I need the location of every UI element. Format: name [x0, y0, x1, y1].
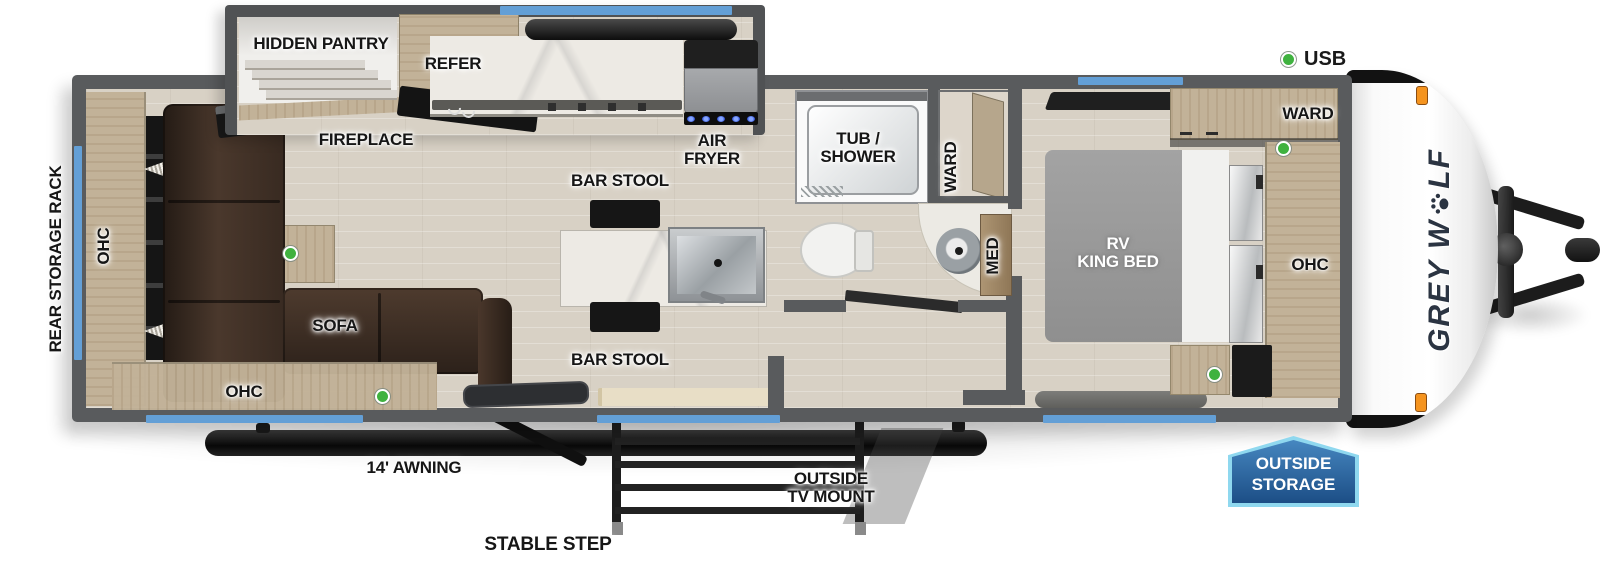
floorplan-diagram: GREY W LF	[0, 0, 1600, 569]
burner-icon	[717, 116, 725, 122]
king-bed-sheet	[1182, 150, 1229, 342]
kitchen-slide-window	[500, 6, 732, 15]
bath-ward-label: WARD	[942, 141, 960, 192]
range-hood	[525, 19, 737, 40]
entry-door-window	[597, 415, 780, 423]
bedroom-wall-foot	[963, 390, 1025, 405]
wardrobe-handle-2	[1206, 132, 1218, 135]
outside-storage-line1: OUTSIDE	[1256, 454, 1332, 474]
air-fryer-label-line1: AIR	[684, 132, 740, 150]
vanity-drain-icon	[955, 247, 963, 255]
awning-label: 14' AWNING	[367, 459, 462, 477]
rv-king-bed-label-line1: RV	[1077, 235, 1159, 253]
stable-step-label: STABLE STEP	[484, 535, 611, 555]
marker-light-top-icon	[1416, 86, 1428, 105]
tub-shower-label: TUB / SHOWER	[820, 130, 895, 166]
med-label: MED	[984, 237, 1002, 274]
shower-rod	[797, 92, 927, 101]
marker-light-bottom-icon	[1415, 393, 1427, 412]
sofa-main-seam	[378, 293, 381, 369]
stable-step-foot-left	[612, 522, 623, 535]
bar-stool-top-label: BAR STOOL	[571, 172, 669, 190]
sofa-chaise	[163, 104, 285, 402]
usb-indicator-bedroom-ohc	[1276, 141, 1291, 156]
usb-legend-label: USB	[1304, 48, 1346, 71]
bedroom-ward-label: WARD	[1282, 105, 1333, 123]
toilet-tank	[854, 230, 874, 272]
bedroom-window-top	[1078, 77, 1183, 85]
bath-wall-bottom	[784, 300, 846, 312]
mirror-hinge	[1256, 175, 1263, 189]
ohc-bottom-cabinet	[112, 362, 437, 410]
awning-roll	[205, 430, 987, 456]
counter-faucet-knobs	[548, 103, 668, 111]
front-cap-bottom-trim	[1346, 415, 1498, 428]
air-fryer-label-line2: FRYER	[684, 150, 740, 168]
door-side-window-left	[146, 415, 363, 423]
air-fryer-label: AIR FRYER	[684, 132, 740, 168]
bedroom-ohc-label: OHC	[1291, 256, 1328, 274]
usb-indicator-ohc-bottom	[375, 389, 390, 404]
island-sink	[668, 227, 765, 303]
stable-step-rung-4	[615, 507, 860, 514]
rear-window	[74, 146, 82, 360]
bar-stool-top	[590, 200, 660, 228]
stable-step-rung-1	[615, 438, 860, 445]
sofa-label: SOFA	[312, 317, 358, 335]
air-fryer-oven	[684, 40, 758, 114]
bar-stool-bottom	[590, 302, 660, 332]
pantry-shelf-step-1	[245, 60, 365, 70]
bedroom-window-bottom	[1043, 415, 1216, 423]
outside-tv-mount-label-line1: OUTSIDE	[787, 470, 874, 488]
hidden-pantry-label: HIDDEN PANTRY	[253, 35, 388, 53]
pantry-shelf-step-3	[259, 80, 391, 90]
pantry-shelf-step-2	[252, 70, 378, 80]
tub-shower-label-line1: TUB /	[820, 130, 895, 148]
sink-drain-icon	[714, 259, 722, 267]
mirror-hinge-2	[1256, 265, 1263, 279]
wolf-paw-icon	[1428, 192, 1452, 216]
rv-king-bed-label-line2: KING BED	[1077, 253, 1159, 271]
bedroom-foot-cabinet	[1232, 345, 1272, 397]
brand-logo: GREY W LF	[1382, 106, 1498, 394]
bath-wall-stub	[958, 300, 1010, 312]
tub-drain-texture	[801, 186, 843, 197]
bar-stool-bottom-label: BAR STOOL	[571, 351, 669, 369]
stable-step-rung-2	[615, 461, 860, 468]
wardrobe-handle	[1180, 132, 1192, 135]
pantry-shelf-step-4	[266, 90, 397, 100]
brand-text-suffix: LF	[1423, 148, 1457, 189]
burner-icon	[732, 116, 740, 122]
tv-entertainment-panel	[146, 116, 164, 360]
outside-storage-badge-inner: OUTSIDE STORAGE	[1232, 440, 1355, 503]
burner-icon	[687, 116, 695, 122]
usb-legend-dot	[1281, 52, 1296, 67]
sofa-chaise-seam-2	[168, 300, 280, 303]
outside-storage-line2: STORAGE	[1252, 475, 1336, 495]
refer-label: REFER	[425, 55, 482, 73]
outside-tv-mount-label: OUTSIDE TV MOUNT	[787, 470, 874, 506]
front-cap-top-trim	[1346, 70, 1498, 83]
burner-icon	[702, 116, 710, 122]
usb-indicator-living-table	[283, 246, 298, 261]
usb-indicator-nightstand	[1207, 367, 1222, 382]
runner-rug	[598, 388, 776, 406]
rear-storage-rack-label: REAR STORAGE RACK	[47, 165, 65, 352]
air-fryer-door	[684, 68, 758, 114]
burner-icon	[747, 116, 755, 122]
cooktop-burner-strip	[684, 112, 758, 125]
bedroom-tv-bar	[1045, 92, 1180, 110]
ohc-mirror-door-bottom	[1229, 245, 1263, 343]
bath-wall-left-lower	[768, 356, 784, 408]
rv-king-bed-label: RV KING BED	[1077, 235, 1159, 271]
stable-step-foot-right	[855, 522, 866, 535]
outside-tv-mount-label-line2: TV MOUNT	[787, 488, 874, 506]
fireplace-label: FIREPLACE	[319, 131, 414, 149]
awning-mount-nub	[256, 423, 270, 433]
tub-shower-label-line2: SHOWER	[820, 148, 895, 166]
entry-door-mat	[463, 381, 590, 408]
ohc-left-label: OHC	[95, 227, 113, 264]
bedroom-divider-upper	[1008, 89, 1022, 209]
ohc-bottom-label: OHC	[225, 383, 262, 401]
brand-text-prefix: GREY W	[1423, 219, 1457, 352]
hitch-coupler	[1565, 238, 1600, 262]
sofa-chaise-seam-1	[168, 200, 280, 203]
bath-wardrobe-door	[972, 92, 1004, 199]
